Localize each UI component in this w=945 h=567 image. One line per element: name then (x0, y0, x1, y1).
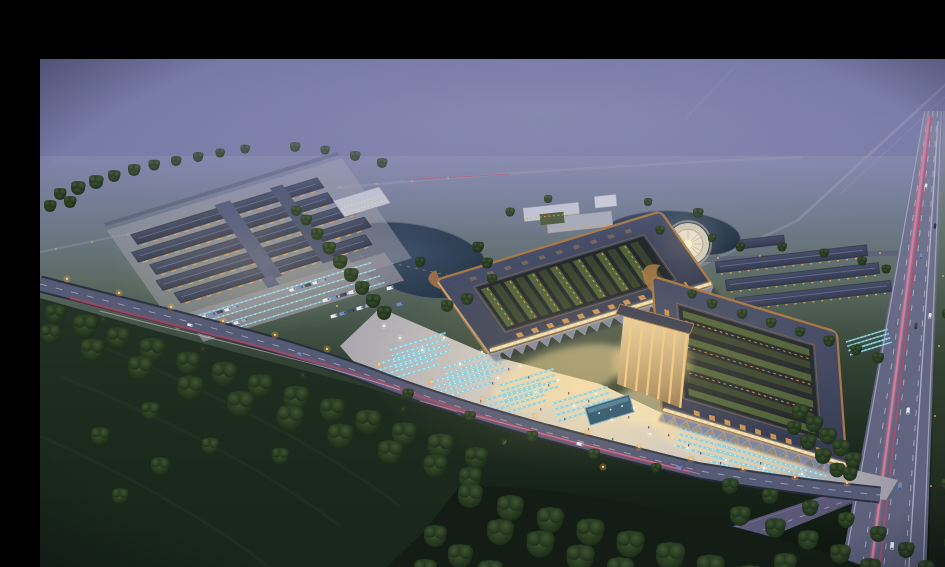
aerial-rendering: Aerial dusk rendering of a large twin-ha… (40, 16, 945, 567)
vignette (40, 59, 945, 567)
architectural-rendering: Aerial dusk rendering of a large twin-ha… (40, 16, 945, 567)
letterbox-top (40, 16, 945, 59)
scene (40, 16, 945, 567)
